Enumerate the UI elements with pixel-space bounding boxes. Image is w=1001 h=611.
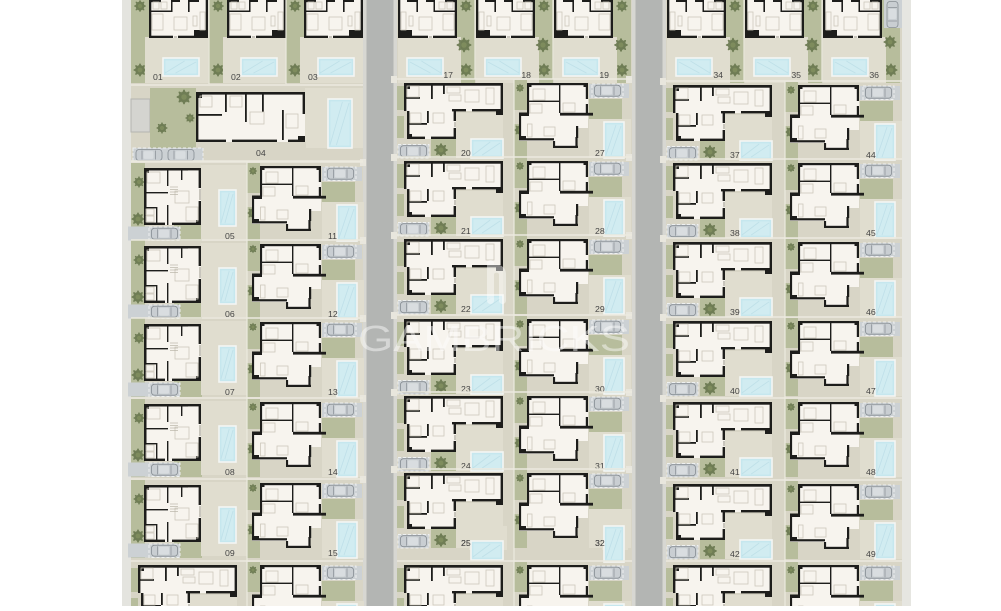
svg-text:15: 15 bbox=[328, 548, 338, 558]
svg-text:36: 36 bbox=[869, 70, 879, 80]
svg-text:40: 40 bbox=[730, 386, 740, 396]
svg-text:09: 09 bbox=[225, 548, 235, 558]
svg-text:39: 39 bbox=[730, 307, 740, 317]
svg-text:35: 35 bbox=[791, 70, 801, 80]
svg-text:22: 22 bbox=[461, 304, 471, 314]
svg-text:13: 13 bbox=[328, 387, 338, 397]
svg-text:48: 48 bbox=[866, 467, 876, 477]
svg-text:45: 45 bbox=[866, 228, 876, 238]
svg-text:07: 07 bbox=[225, 387, 235, 397]
svg-text:46: 46 bbox=[866, 307, 876, 317]
svg-text:42: 42 bbox=[730, 549, 740, 559]
svg-text:38: 38 bbox=[730, 228, 740, 238]
svg-text:08: 08 bbox=[225, 467, 235, 477]
svg-text:47: 47 bbox=[866, 386, 876, 396]
svg-text:14: 14 bbox=[328, 467, 338, 477]
svg-text:49: 49 bbox=[866, 549, 876, 559]
svg-text:GAMBRICKS: GAMBRICKS bbox=[358, 318, 630, 359]
svg-text:29: 29 bbox=[595, 304, 605, 314]
svg-text:04: 04 bbox=[256, 148, 266, 158]
svg-text:41: 41 bbox=[730, 467, 740, 477]
svg-text:32: 32 bbox=[595, 538, 605, 548]
svg-text:25: 25 bbox=[461, 538, 471, 548]
svg-text:02: 02 bbox=[231, 72, 241, 82]
svg-text:34: 34 bbox=[713, 70, 723, 80]
svg-text:03: 03 bbox=[308, 72, 318, 82]
svg-text:01: 01 bbox=[153, 72, 163, 82]
